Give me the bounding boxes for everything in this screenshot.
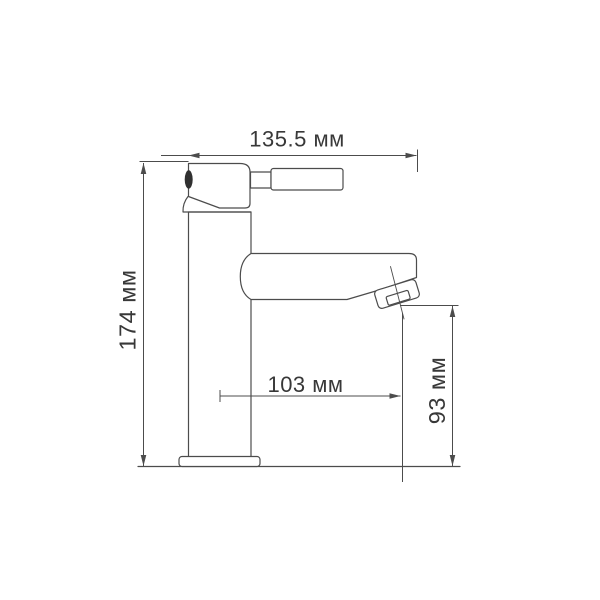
dimension-label-spout-height: 93 мм [424,357,450,424]
base-plate [179,457,260,467]
arrowhead-right [390,393,401,399]
diagram-page: 135.5 мм 174 мм 103 мм 93 мм [0,0,600,600]
arrowhead-left [189,153,200,159]
dimension-label-spout-reach: 103 мм [267,372,343,397]
dimension-label-overall-width: 135.5 мм [249,127,344,152]
faucet-outline [138,164,460,467]
handle-stem [251,172,272,188]
arrowhead-top [450,306,456,317]
faucet-technical-drawing: 135.5 мм 174 мм 103 мм 93 мм [0,0,600,600]
arrowhead-right [406,153,417,159]
dimension-label-overall-height: 174 мм [115,269,141,350]
arrowhead-bottom [450,455,456,466]
dimension-overall-height [141,163,147,466]
faucet-head [189,164,251,209]
handle-grip [271,169,343,191]
dimension-annotations [140,150,459,483]
set-screw-icon [185,170,193,188]
arrowhead-top [141,163,147,174]
faucet-body-column [189,212,252,457]
arrowhead-bottom [141,455,147,466]
